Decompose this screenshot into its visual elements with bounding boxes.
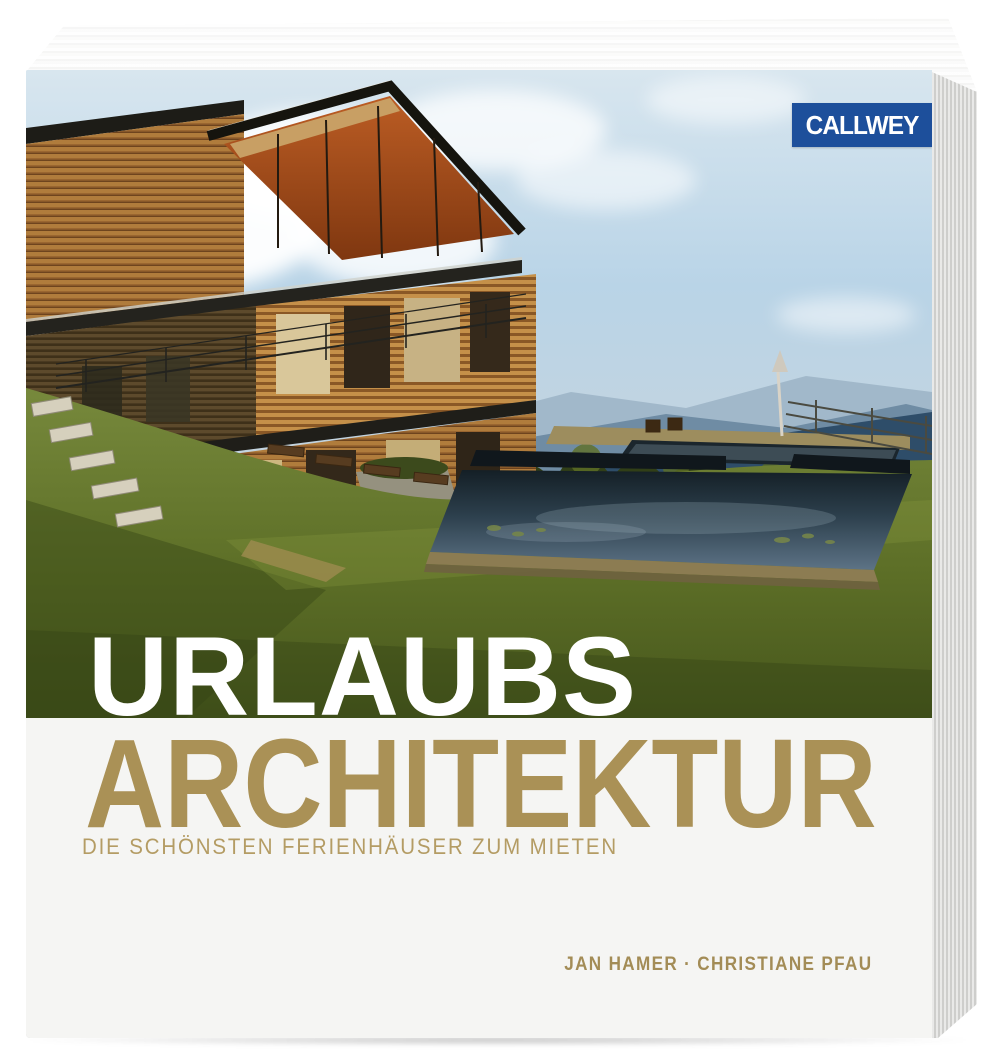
front-cover: CALLWEY URLAUBS ARCHITEKTUR DIE SCHÖNSTE…: [26, 70, 932, 1038]
book-subtitle: DIE SCHÖNSTEN FERIENHÄUSER ZUM MIETEN: [82, 834, 618, 860]
book-product-photo: CALLWEY URLAUBS ARCHITEKTUR DIE SCHÖNSTE…: [0, 0, 989, 1052]
book-authors: JAN HAMER · CHRISTIANE PFAU: [564, 955, 872, 974]
publisher-logo: CALLWEY: [792, 103, 932, 147]
publisher-logo-label: CALLWEY: [806, 112, 919, 138]
book-title-line-2: ARCHITEKTUR: [85, 721, 877, 847]
